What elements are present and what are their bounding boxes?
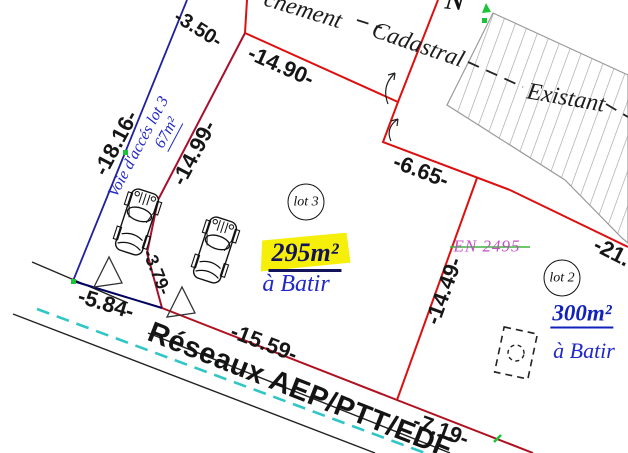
lot3-status-label: à Batir [262,272,329,296]
frontage-line [162,308,533,453]
lot2-badge: lot 2 [544,260,581,297]
well-symbol-icon [495,327,538,379]
existing-building-hatch [447,13,628,243]
north-label: N [444,0,466,15]
lot3-badge: lot 3 [288,184,325,221]
lot2-status-label: à Batir [553,340,615,362]
parcel-ref-label: EN 2495 [454,238,521,255]
lot3-area-label: 295m² [268,240,341,266]
lot2-area-label: 300m² [550,302,613,325]
car-icon [188,214,241,286]
cadastral-plan: N chement Cadastral Existant -3.50- -14.… [0,0,628,453]
